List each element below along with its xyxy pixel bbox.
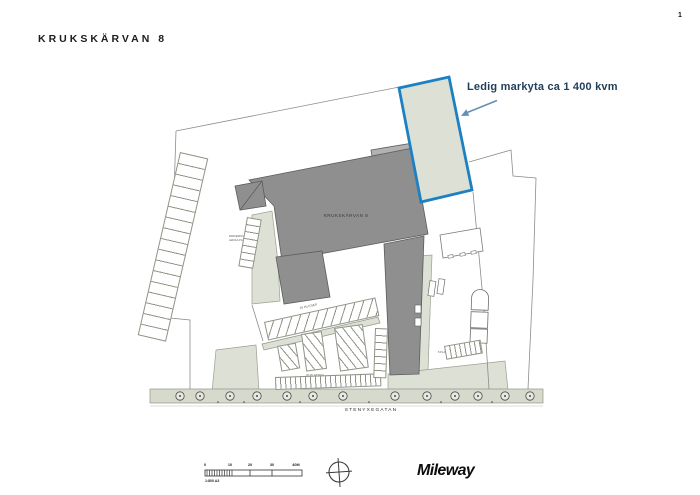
street-label: STENYXEGATAN: [345, 407, 398, 413]
available-area-annotation: Ledig markyta ca 1 400 kvm: [467, 81, 618, 93]
upper-row-label: 26 PLATSER: [299, 302, 318, 310]
scale-tick-30: 30: [270, 463, 274, 467]
scale-tick-10: 10: [228, 463, 232, 467]
parking-cluster-c: [334, 324, 369, 372]
parking-row-wing: [373, 328, 388, 378]
scale-tick-40m: 40M: [292, 463, 299, 467]
car-figures: [428, 279, 445, 297]
brochure-sheet: KRUKSKÄRVAN 8 1: [0, 0, 700, 495]
scale-bar: 0 10 20 30 40M 1:800 A3: [204, 463, 302, 483]
scale-tick-20: 20: [248, 463, 252, 467]
truck-figure: [470, 289, 489, 343]
annotation-arrow-icon: [461, 101, 497, 117]
canopy-structure: [440, 228, 483, 258]
site-plan: KRUKSKÄRVAN 8 STENYXEGATAN PARKERING LED…: [0, 0, 700, 495]
scale-tick-0: 0: [204, 463, 206, 467]
north-arrow-icon: [325, 457, 353, 488]
mileway-logo: Mileway: [417, 462, 474, 480]
building-foot: [276, 251, 330, 304]
building-label: KRUKSKÄRVAN 8: [324, 212, 369, 218]
parking-note-line1: PARKERING: [229, 234, 244, 238]
scale-ratio-label: 1:800 A3: [205, 479, 219, 483]
